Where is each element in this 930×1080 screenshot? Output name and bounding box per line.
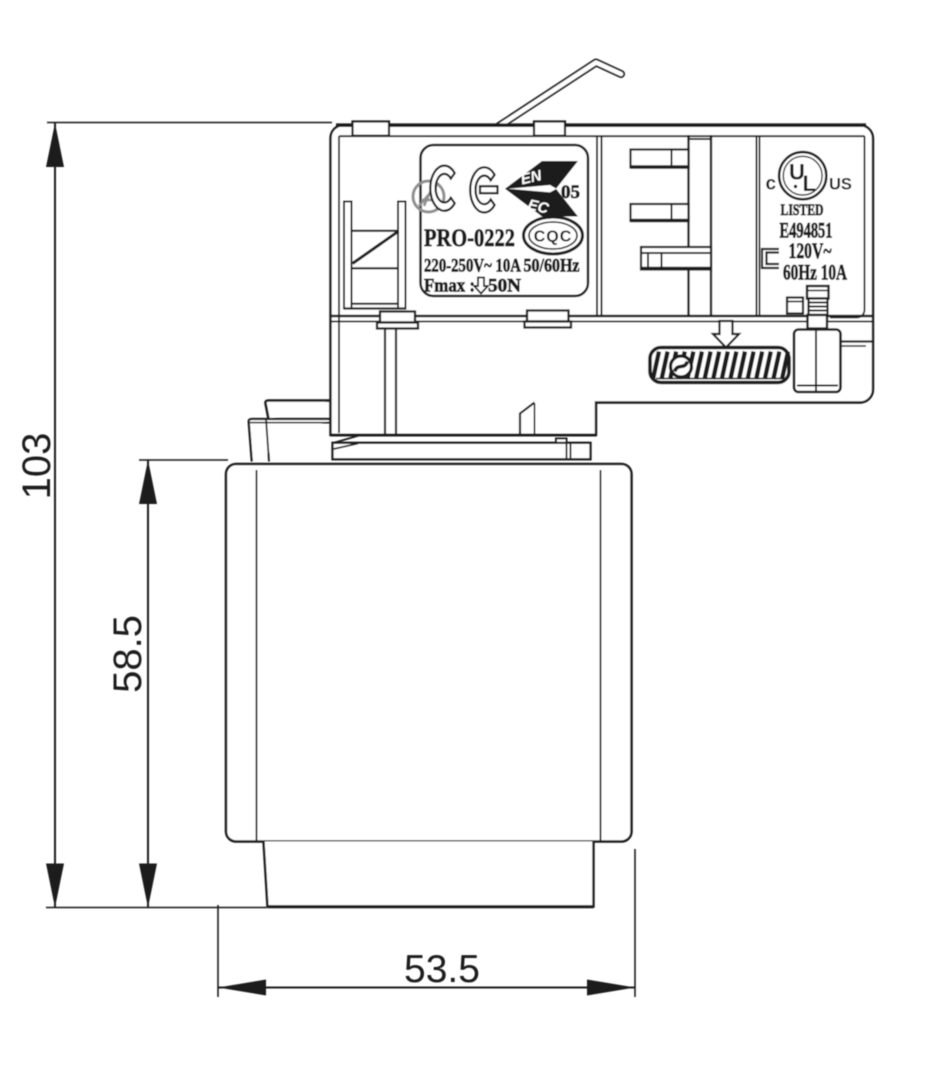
svg-text:CQC: CQC	[534, 229, 573, 246]
svg-text:50/60Hz: 50/60Hz	[524, 256, 580, 277]
svg-text:Fmax :: Fmax :	[424, 276, 475, 297]
svg-text:US: US	[829, 176, 852, 194]
svg-text:c: c	[766, 174, 777, 195]
svg-text:LISTED: LISTED	[781, 202, 824, 219]
svg-text:05: 05	[561, 182, 580, 203]
svg-text:103: 103	[15, 433, 59, 500]
svg-text:53.5: 53.5	[404, 948, 480, 991]
svg-text:58.5: 58.5	[106, 615, 150, 693]
svg-text:50N: 50N	[488, 276, 521, 297]
svg-text:L: L	[803, 171, 816, 196]
svg-text:220-250V~ 10A: 220-250V~ 10A	[424, 256, 521, 277]
svg-text:PRO-0222: PRO-0222	[424, 225, 515, 252]
svg-text:60Hz 10A: 60Hz 10A	[783, 260, 847, 285]
